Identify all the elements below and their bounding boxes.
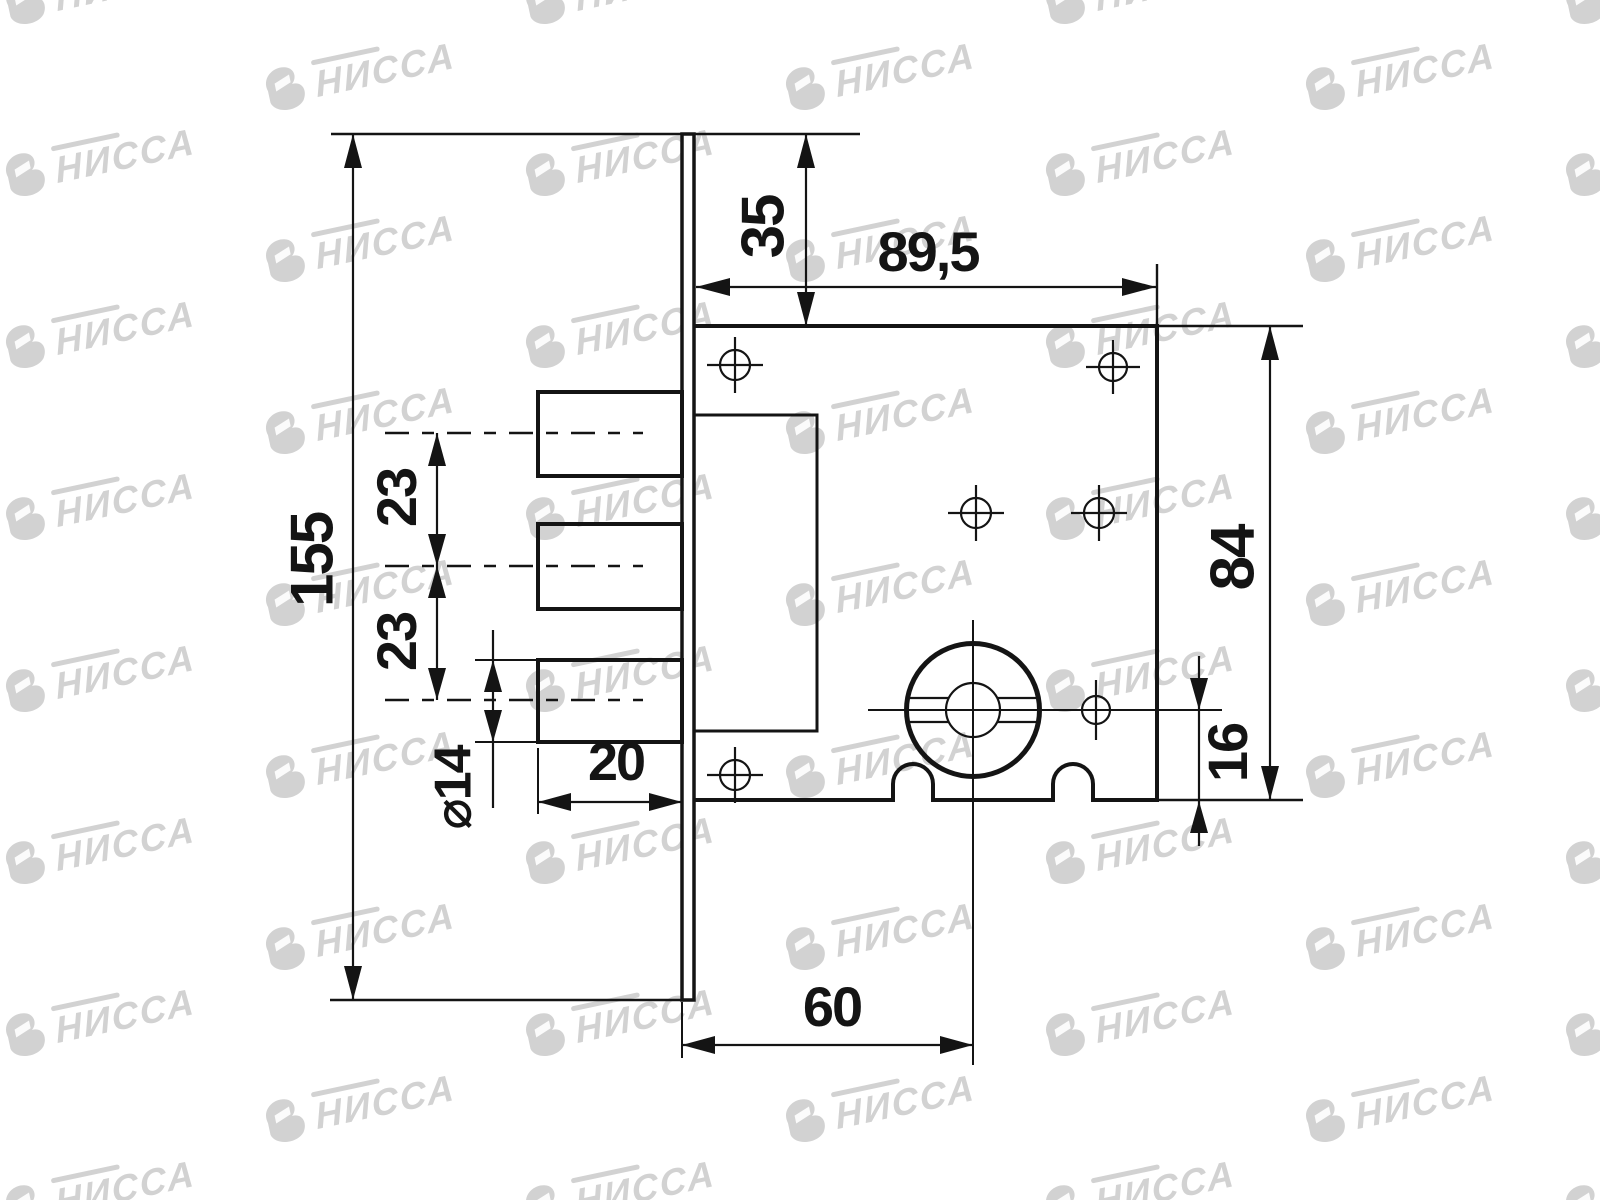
mounting-hole-mid-left bbox=[948, 485, 1004, 541]
dim-total-height: 155 bbox=[279, 134, 362, 1000]
dim-body-height-label: 84 bbox=[1198, 523, 1267, 590]
technical-drawing: 155 35 89,5 bbox=[0, 0, 1600, 1200]
dim-backset: 60 bbox=[682, 975, 973, 1054]
lock-outline bbox=[538, 134, 1157, 1000]
mounting-hole-mid-right bbox=[1071, 485, 1127, 541]
dimension-annotations: 155 35 89,5 bbox=[279, 134, 1279, 1054]
bolt-housing bbox=[694, 415, 817, 731]
dim-bolt-pitch-lower-label: 23 bbox=[365, 612, 428, 671]
mounting-hole-bottom-left bbox=[707, 747, 763, 803]
mounting-holes bbox=[707, 337, 1140, 803]
dim-body-width-label: 89,5 bbox=[878, 220, 980, 283]
dim-bolt-diameter-label: ⌀14 bbox=[425, 744, 483, 829]
dim-bolt-pitch-upper-label: 23 bbox=[365, 468, 428, 527]
dim-top-to-body: 35 bbox=[730, 134, 815, 326]
dim-total-height-label: 155 bbox=[279, 512, 346, 607]
mounting-hole-top-left bbox=[707, 337, 763, 393]
lock-body bbox=[694, 326, 1157, 800]
dim-bolt-depth-label: 20 bbox=[588, 732, 644, 792]
lock-dimension-drawing: НИССАНИССАНИССАНИССАНИССАНИССАНИССАНИССА… bbox=[0, 0, 1600, 1200]
mounting-hole-top-right bbox=[1086, 340, 1140, 394]
dim-cylinder-to-bottom-label: 16 bbox=[1196, 723, 1259, 782]
dim-backset-label: 60 bbox=[803, 975, 861, 1038]
dim-cylinder-to-bottom: 16 bbox=[1190, 656, 1259, 846]
dim-top-to-body-label: 35 bbox=[730, 195, 797, 258]
